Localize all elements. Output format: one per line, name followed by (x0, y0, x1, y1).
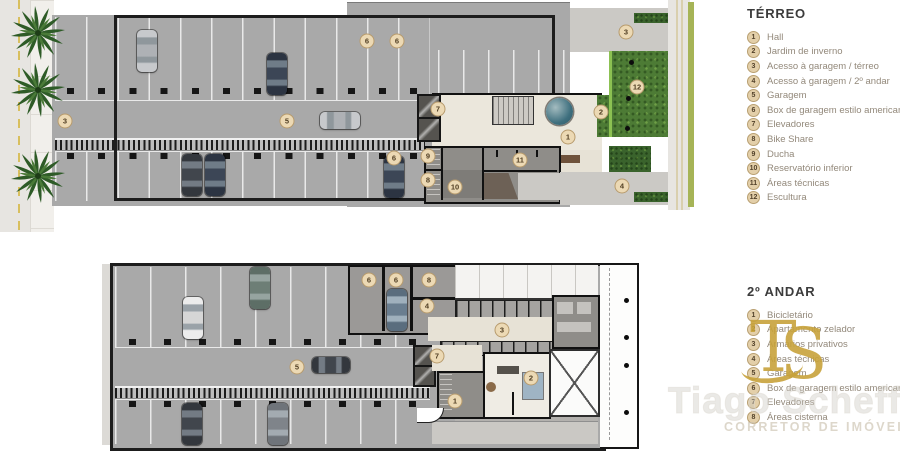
equipment-mark (536, 150, 538, 157)
elevator-cab (419, 119, 439, 140)
grass-verge (688, 2, 694, 207)
legend-item: 8 Áreas cisterna (747, 410, 899, 425)
legend-andar2: 2º ANDAR 1 Bicicletário 2 Apartamento ze… (747, 284, 899, 425)
reservatorio-room (443, 170, 482, 198)
legend-item-label: Áreas técnicas (767, 178, 829, 189)
legend-item: 4 Áreas técnicas (747, 352, 899, 367)
parked-car (268, 403, 288, 445)
floor-plans-canvas: 356667981011121234668437512 TÉRREO 1 Hal… (0, 0, 900, 451)
legend-item-number: 3 (747, 338, 760, 351)
palm-tree (8, 60, 68, 120)
legend-item: 11 Áreas técnicas (747, 176, 899, 191)
legend-item-number: 4 (747, 75, 760, 88)
legend-item-number: 1 (747, 309, 760, 322)
tree-dot (625, 126, 630, 131)
palm-tree (8, 3, 68, 63)
legend-terreo: TÉRREO 1 Hall 2 Jardim de inverno 3 Aces… (747, 6, 899, 205)
room-partition-wall (482, 146, 484, 200)
parked-car (205, 154, 225, 196)
andar2-upper-wheel-stops (115, 339, 430, 345)
tree-dot (626, 96, 631, 101)
column-dot (624, 298, 629, 303)
cisterna-area (549, 349, 600, 417)
column-dot (624, 363, 629, 368)
legend-item: 4 Acesso à garagem / 2º andar (747, 74, 899, 89)
legend-item: 7 Elevadores (747, 396, 899, 411)
legend-item: 1 Hall (747, 30, 899, 45)
parked-car (137, 30, 157, 72)
legend-item-number: 5 (747, 89, 760, 102)
legend-item: 10 Reservatório inferior (747, 161, 899, 176)
legend-item: 1 Bicicletário (747, 308, 899, 323)
parked-car (267, 53, 287, 95)
legend-item-label: Acesso à garagem / térreo (767, 61, 879, 72)
legend-item-label: Garagem (767, 90, 807, 101)
legend-item-label: Elevadores (767, 119, 815, 130)
bike-racks (440, 374, 452, 412)
andar2-ramp-strip (600, 263, 639, 449)
driving-car (312, 357, 350, 373)
legend-item-number: 8 (747, 411, 760, 424)
legend-item-number: 7 (747, 118, 760, 131)
terreo-stairs (492, 96, 534, 125)
bike-share-racks (427, 149, 440, 197)
box-wall (412, 297, 455, 300)
andar2-rear-driveway (432, 421, 598, 444)
room-partition-wall (482, 170, 557, 172)
legend-item-number: 8 (747, 133, 760, 146)
terreo-elevators (417, 94, 441, 142)
winter-garden (597, 95, 609, 137)
parked-car (182, 154, 202, 196)
apartment-bed (522, 372, 544, 400)
legend-item: 5 Garagem (747, 88, 899, 103)
driving-car (320, 112, 360, 129)
elevator-cab (419, 96, 439, 117)
legend-item-number: 9 (747, 148, 760, 161)
legend-item-label: Jardim de inverno (767, 46, 843, 57)
equipment-mark (496, 150, 498, 157)
legend-item-number: 3 (747, 60, 760, 73)
legend-item-number: 4 (747, 353, 760, 366)
street-right-line (676, 0, 678, 210)
parked-car (183, 297, 203, 339)
legend-item: 5 Garagem (747, 366, 899, 381)
legend-item: 12 Escultura (747, 191, 899, 206)
parked-car (387, 289, 407, 331)
legend-item: 2 Apartamento zelador (747, 323, 899, 338)
hedge-middle (609, 146, 651, 173)
legend-item: 3 Armários privativos (747, 337, 899, 352)
legend-item: 6 Box de garagem estilo americano (747, 381, 899, 396)
legend-item-number: 12 (747, 191, 760, 204)
apartment-table (486, 382, 496, 392)
legend-item-number: 10 (747, 162, 760, 175)
equipment-mark (516, 150, 518, 157)
terreo-rear-driveway-patch (518, 173, 560, 200)
legend-item: 9 Ducha (747, 147, 899, 162)
room-partition-wall (424, 169, 442, 171)
technical-equipment (557, 302, 573, 314)
legend-item-label: Ducha (767, 149, 794, 160)
legend-item-number: 5 (747, 367, 760, 380)
street-right (668, 0, 690, 210)
column-dot (624, 335, 629, 340)
legend-item-label: Elevadores (767, 397, 815, 408)
legend-terreo-title: TÉRREO (747, 6, 899, 21)
sculpture-garden (609, 51, 671, 137)
parked-car (250, 267, 270, 309)
palm-tree (8, 146, 68, 206)
legend-item-number: 2 (747, 45, 760, 58)
legend-item-label: Box de garagem estilo americano (767, 105, 900, 116)
legend-item-number: 7 (747, 396, 760, 409)
parked-car (384, 156, 404, 198)
street-right-line (681, 0, 683, 210)
legend-item-label: Apartamento zelador (767, 324, 855, 335)
legend-item-label: Escultura (767, 192, 807, 203)
technical-equipment (557, 322, 591, 332)
legend-item: 7 Elevadores (747, 118, 899, 133)
technical-equipment (577, 302, 591, 314)
legend-item-number: 6 (747, 382, 760, 395)
legend-item-label: Áreas técnicas (767, 354, 829, 365)
legend-item-label: Garagem (767, 368, 807, 379)
column-dot (624, 410, 629, 415)
legend-item: 6 Box de garagem estilo americano (747, 103, 899, 118)
legend-item-label: Armários privativos (767, 339, 848, 350)
legend-item-label: Acesso à garagem / 2º andar (767, 76, 890, 87)
andar2-edge-strip (102, 264, 110, 445)
hall-spa-sculpture (546, 98, 573, 125)
ramp-dashed-line (609, 268, 611, 440)
legend-andar2-title: 2º ANDAR (747, 284, 899, 299)
andar2-lobby (432, 345, 482, 371)
legend-item-number: 11 (747, 177, 760, 190)
legend-item-label: Bicicletário (767, 310, 813, 321)
legend-item-label: Hall (767, 32, 783, 43)
parked-car (182, 403, 202, 445)
legend-item: 2 Jardim de inverno (747, 45, 899, 60)
legend-item-label: Reservatório inferior (767, 163, 853, 174)
box-wall (382, 265, 385, 331)
legend-item: 8 Bike Share (747, 132, 899, 147)
legend-item-number: 6 (747, 104, 760, 117)
andar2-rumble-strip (115, 386, 430, 399)
legend-item: 3 Acesso à garagem / térreo (747, 59, 899, 74)
legend-item-label: Box de garagem estilo americano (767, 383, 900, 394)
apartment-kitchen (497, 366, 519, 374)
legend-terreo-list: 1 Hall 2 Jardim de inverno 3 Acesso à ga… (747, 30, 899, 205)
tree-dot (629, 60, 634, 65)
legend-item-label: Áreas cisterna (767, 412, 828, 423)
legend-item-label: Bike Share (767, 134, 813, 145)
hedge-bottom (634, 192, 668, 202)
legend-item-number: 1 (747, 31, 760, 44)
apartment-wall (512, 392, 514, 415)
legend-item-number: 2 (747, 323, 760, 336)
hedge-top (634, 13, 668, 23)
legend-andar2-list: 1 Bicicletário 2 Apartamento zelador 3 A… (747, 308, 899, 425)
